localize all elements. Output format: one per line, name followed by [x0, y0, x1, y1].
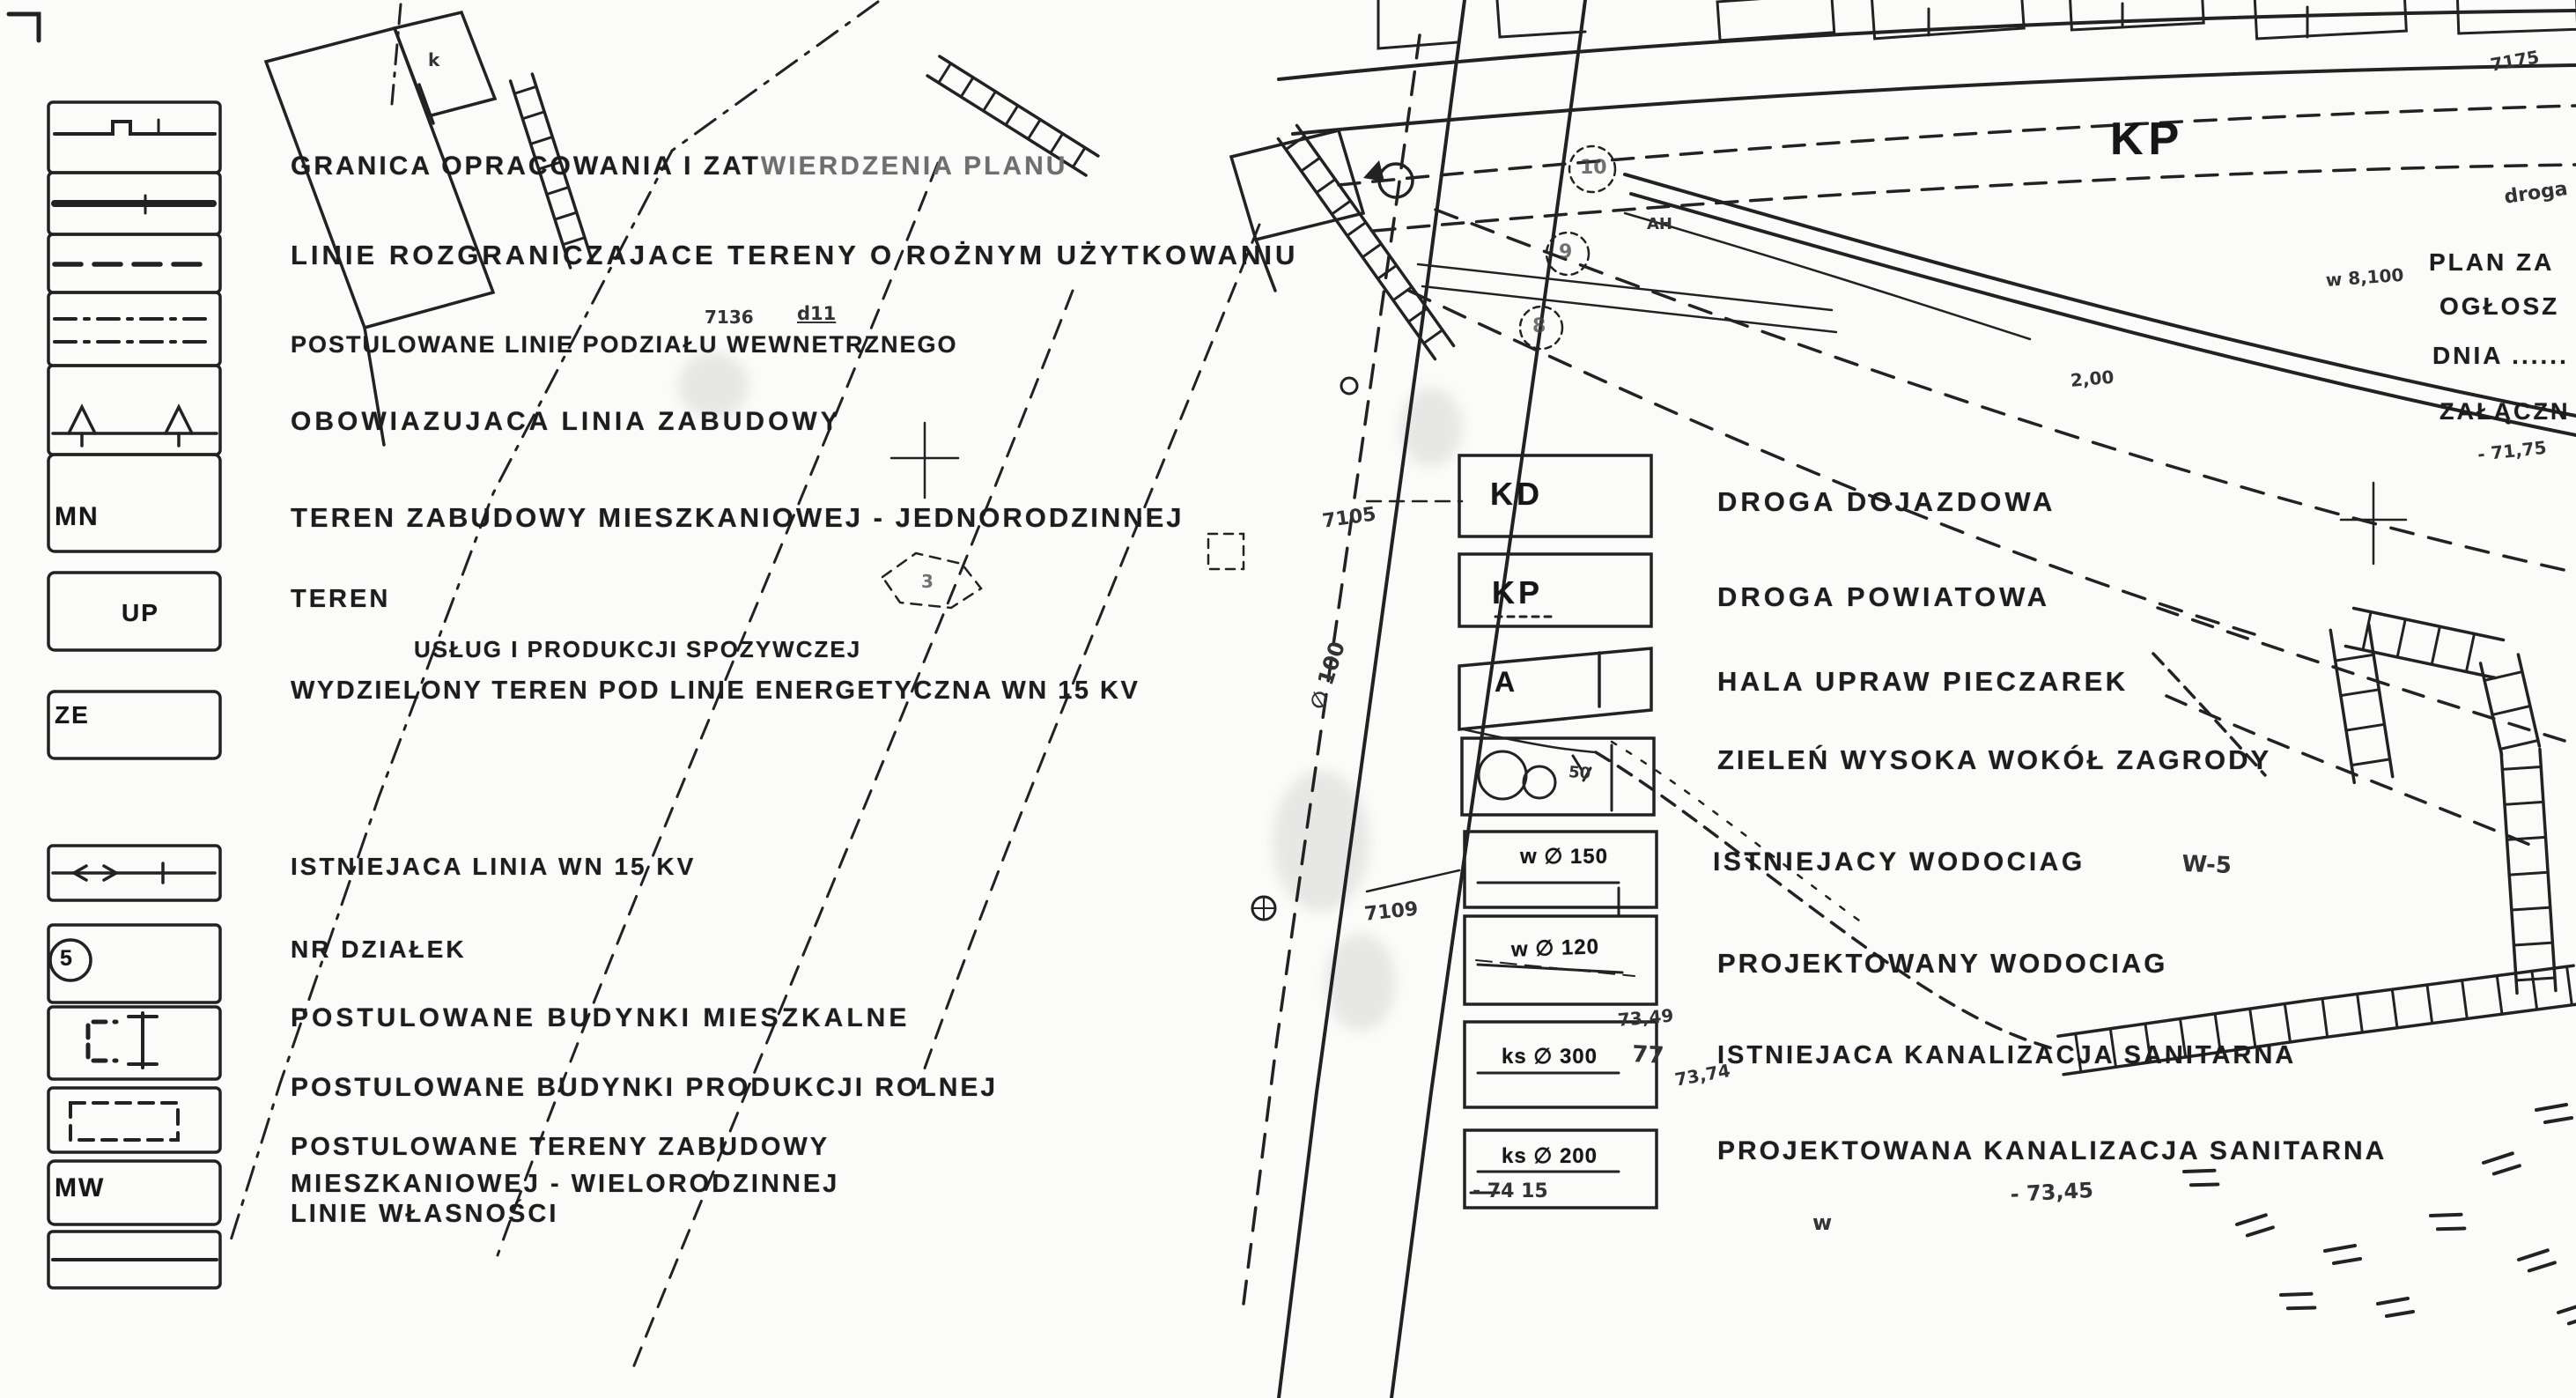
symbol-istniejaca-linia-wn — [53, 863, 215, 883]
legend-istniejacy-wodociag: ISTNIEJACY WODOCIAG — [1713, 847, 2085, 877]
code-up: UP — [122, 599, 159, 627]
note-7136: 7136 — [705, 307, 754, 328]
map-kp-road-label: KP — [2110, 113, 2184, 166]
code-kp: KP — [1492, 574, 1543, 611]
annotation-w: w — [1812, 1210, 1832, 1235]
code-a: A — [1495, 666, 1517, 699]
legend-nr-dzialek: NR DZIAŁEK — [291, 936, 467, 964]
annotation-ah: AH — [1647, 215, 1672, 233]
annotation-50: 50 — [1568, 763, 1591, 783]
code-dzialka-5: 5 — [60, 946, 74, 972]
legend-tereny-mw-1: POSTULOWANE TERENY ZABUDOWY — [291, 1133, 830, 1162]
legend-symbol-boxes — [48, 102, 220, 1288]
legend-istniejaca-kanalizacja: ISTNIEJACA KANALIZACJA SANITARNA — [1717, 1041, 2296, 1070]
code-mn: MN — [55, 502, 100, 532]
survey-crosses — [891, 423, 2406, 564]
annotation-minus-73-45: - 73,45 — [2010, 1178, 2094, 1207]
symbol-granica — [55, 120, 215, 134]
corner-oglosz-text: OGŁOSZ — [2439, 292, 2559, 321]
legend-hala-upraw: HALA UPRAW PIECZAREK — [1717, 666, 2129, 698]
right-legend-boxes — [1459, 455, 1657, 1208]
corner-plan-text: PLAN ZA — [2429, 248, 2554, 277]
parcel-number-9: 9 — [1559, 241, 1572, 263]
legend-budynki-mieszkalne: POSTULOWANE BUDYNKI MIESZKALNE — [291, 1003, 910, 1033]
code-ks200: ks ∅ 200 — [1502, 1143, 1598, 1169]
legend-teren-up-1: TEREN — [291, 585, 390, 614]
legend-linie-rozgraniczajace: LINIE ROZGRANICZAJACE TERENY O ROŻNYM UŻ… — [291, 240, 1298, 271]
legend-budynki-rolne: POSTULOWANE BUDYNKI PRODUKCJI ROLNEJ — [291, 1073, 998, 1103]
legend-projektowany-wodociag: PROJEKTOWANY WODOCIAG — [1717, 948, 2167, 980]
code-mw: MW — [55, 1173, 105, 1203]
parcel-number-10: 10 — [1580, 157, 1607, 179]
code-w120: w ∅ 120 — [1511, 934, 1600, 962]
building-topleft — [266, 12, 1363, 445]
ks200-sub: - 74 15 — [1473, 1180, 1548, 1202]
legend-postulowane-linie: POSTULOWANE LINIE PODZIAŁU WEWNETRZNEGO — [291, 331, 957, 359]
legend-teren-ze: WYDZIELONY TEREN POD LINIE ENERGETYCZNA … — [291, 677, 1140, 706]
parcel-number-8: 8 — [1532, 315, 1546, 337]
legend-linie-wlasnosci: LINIE WŁASNOŚCI — [291, 1200, 558, 1229]
legend-teren-mn: TEREN ZABUDOWY MIESZKANIOWEJ - JEDNORODZ… — [291, 502, 1185, 534]
parcel-number-3: 3 — [921, 571, 934, 592]
legend-linia-zabudowy: OBOWIAZUJACA LINIA ZABUDOWY — [291, 407, 842, 437]
legend-projektowana-kanalizacja: PROJEKTOWANA KANALIZACJA SANITARNA — [1717, 1136, 2387, 1166]
building-k-label: k — [428, 49, 439, 70]
legend-istniejaca-linia: ISTNIEJACA LINIA WN 15 KV — [291, 853, 696, 881]
symbol-budynki-rolne — [70, 1103, 178, 1140]
symbol-budynki-mieszkalne — [88, 1013, 157, 1068]
code-ks300: ks ∅ 300 — [1502, 1044, 1598, 1069]
buildings-top-row — [1378, 0, 2576, 48]
symbol-linia-zabudowy — [53, 407, 217, 446]
legend-teren-up-2: USŁUG I PRODUKCJI SPOZYWCZEJ — [414, 636, 861, 663]
legend-granica: GRANICA OPRACOWANIA I ZATWIERDZENIA PLAN… — [291, 152, 1067, 181]
code-ze: ZE — [55, 701, 90, 729]
annotation-77: 77 — [1631, 1041, 1664, 1069]
corner-fragment — [9, 14, 39, 41]
wodociag-w5: W-5 — [2181, 851, 2232, 879]
annotation-2-00: 2,00 — [2070, 366, 2115, 391]
legend-droga-dojazdowa: DROGA DOJAZDOWA — [1717, 486, 2056, 518]
code-kd: KD — [1490, 476, 1543, 513]
code-w150: w ∅ 150 — [1520, 844, 1608, 869]
legend-tereny-mw-2: MIESZKANIOWEJ - WIELORODZINNEJ — [291, 1170, 839, 1199]
scanned-plan-sheet: GRANICA OPRACOWANIA I ZATWIERDZENIA PLAN… — [0, 0, 2576, 1398]
corner-zalacznik-text: ZAŁĄCZN — [2439, 398, 2570, 425]
legend-zielen-wysoka: ZIELEŃ WYSOKA WOKÓŁ ZAGRODY — [1717, 744, 2271, 776]
corner-dnia-text: DNIA ...... — [2432, 342, 2569, 370]
note-d11: d11 — [797, 303, 836, 324]
legend-droga-powiatowa: DROGA POWIATOWA — [1717, 581, 2050, 613]
